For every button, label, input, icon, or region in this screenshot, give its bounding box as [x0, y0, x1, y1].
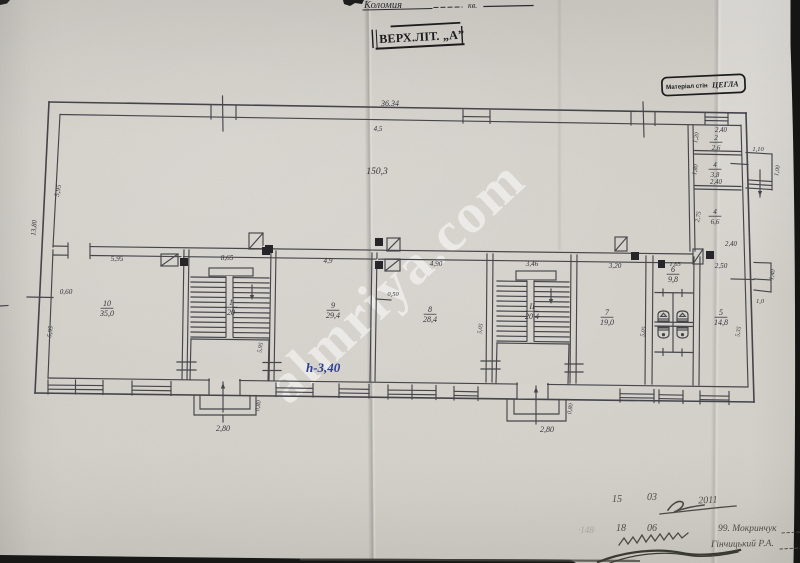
svg-text:2,40: 2,40	[715, 127, 727, 134]
svg-text:2,6: 2,6	[712, 144, 721, 152]
svg-text:1,40: 1,40	[768, 268, 777, 281]
svg-text:3,8: 3,8	[710, 171, 720, 179]
svg-text:II: II	[528, 302, 535, 311]
svg-text:2,40: 2,40	[710, 179, 722, 186]
svg-text:36.34: 36.34	[380, 99, 399, 108]
svg-text:5,05: 5,05	[477, 323, 485, 334]
svg-text:6: 6	[671, 265, 675, 274]
svg-text:18: 18	[616, 523, 626, 534]
svg-text:1,10: 1,10	[752, 146, 764, 153]
svg-text:ЦЕГЛА: ЦЕГЛА	[711, 79, 740, 89]
svg-text:2,50: 2,50	[715, 262, 728, 270]
svg-text:Матеріал стін: Матеріал стін	[666, 82, 708, 91]
svg-text:2: 2	[714, 134, 718, 142]
svg-text:Гінчицький Р.А.: Гінчицький Р.А.	[710, 538, 774, 550]
svg-text:1,20: 1,20	[692, 131, 701, 144]
svg-text:1,0: 1,0	[756, 298, 765, 305]
svg-text:20,4: 20,4	[525, 312, 539, 321]
svg-text:1,00: 1,00	[773, 164, 782, 177]
svg-text:15: 15	[612, 494, 622, 505]
svg-text:150,3: 150,3	[366, 167, 388, 177]
svg-text:3,46: 3,46	[525, 260, 539, 268]
svg-text:13,80: 13,80	[29, 219, 38, 236]
svg-text:06: 06	[647, 523, 657, 534]
svg-text:4: 4	[713, 208, 717, 216]
svg-text:14,8: 14,8	[714, 318, 728, 327]
svg-text:5,95: 5,95	[111, 255, 124, 263]
svg-text:29,4: 29,4	[326, 311, 340, 320]
svg-text:0,80: 0,80	[254, 399, 263, 412]
svg-text:кв.: кв.	[468, 1, 477, 10]
svg-text:4: 4	[713, 161, 717, 169]
svg-text:0,60: 0,60	[60, 288, 73, 296]
svg-text:03: 03	[647, 492, 657, 503]
svg-text:4,9: 4,9	[324, 257, 333, 265]
svg-text:0,80: 0,80	[566, 402, 575, 415]
svg-text:8,65: 8,65	[221, 254, 234, 262]
svg-text:7: 7	[605, 308, 610, 317]
svg-text:1,80: 1,80	[691, 163, 700, 176]
svg-text:5,95: 5,95	[257, 342, 265, 353]
svg-text:4,5: 4,5	[374, 125, 383, 133]
svg-text:5,95: 5,95	[53, 183, 63, 197]
svg-text:2,75: 2,75	[694, 211, 703, 223]
svg-text:19,0: 19,0	[600, 318, 614, 327]
svg-text:3,20: 3,20	[608, 262, 622, 270]
svg-text:35,0: 35,0	[99, 309, 114, 318]
svg-text:1: 1	[229, 298, 233, 307]
svg-text:0,50: 0,50	[387, 291, 399, 298]
svg-text:·148·: ·148·	[578, 525, 596, 535]
svg-text:2,80: 2,80	[540, 425, 554, 434]
svg-text:2,40: 2,40	[725, 241, 737, 248]
svg-text:20: 20	[227, 308, 235, 317]
svg-text:5,05: 5,05	[640, 326, 648, 337]
svg-text:ВЕРХ.ЛІТ. „А”: ВЕРХ.ЛІТ. „А”	[379, 28, 465, 46]
svg-text:28,4: 28,4	[423, 315, 437, 324]
svg-text:h-3,40: h-3,40	[306, 360, 341, 375]
svg-text:10: 10	[103, 299, 111, 308]
svg-text:9: 9	[331, 301, 335, 310]
svg-text:5,95: 5,95	[46, 325, 55, 338]
svg-text:9,8: 9,8	[668, 275, 678, 284]
svg-text:8: 8	[428, 305, 432, 314]
svg-text:99. Мокринчук: 99. Мокринчук	[718, 524, 777, 534]
svg-text:5: 5	[719, 308, 723, 317]
svg-text:6,6: 6,6	[711, 218, 720, 226]
svg-text:4,90: 4,90	[430, 260, 443, 268]
svg-text:5,35: 5,35	[735, 326, 743, 337]
svg-text:2,80: 2,80	[216, 424, 230, 433]
